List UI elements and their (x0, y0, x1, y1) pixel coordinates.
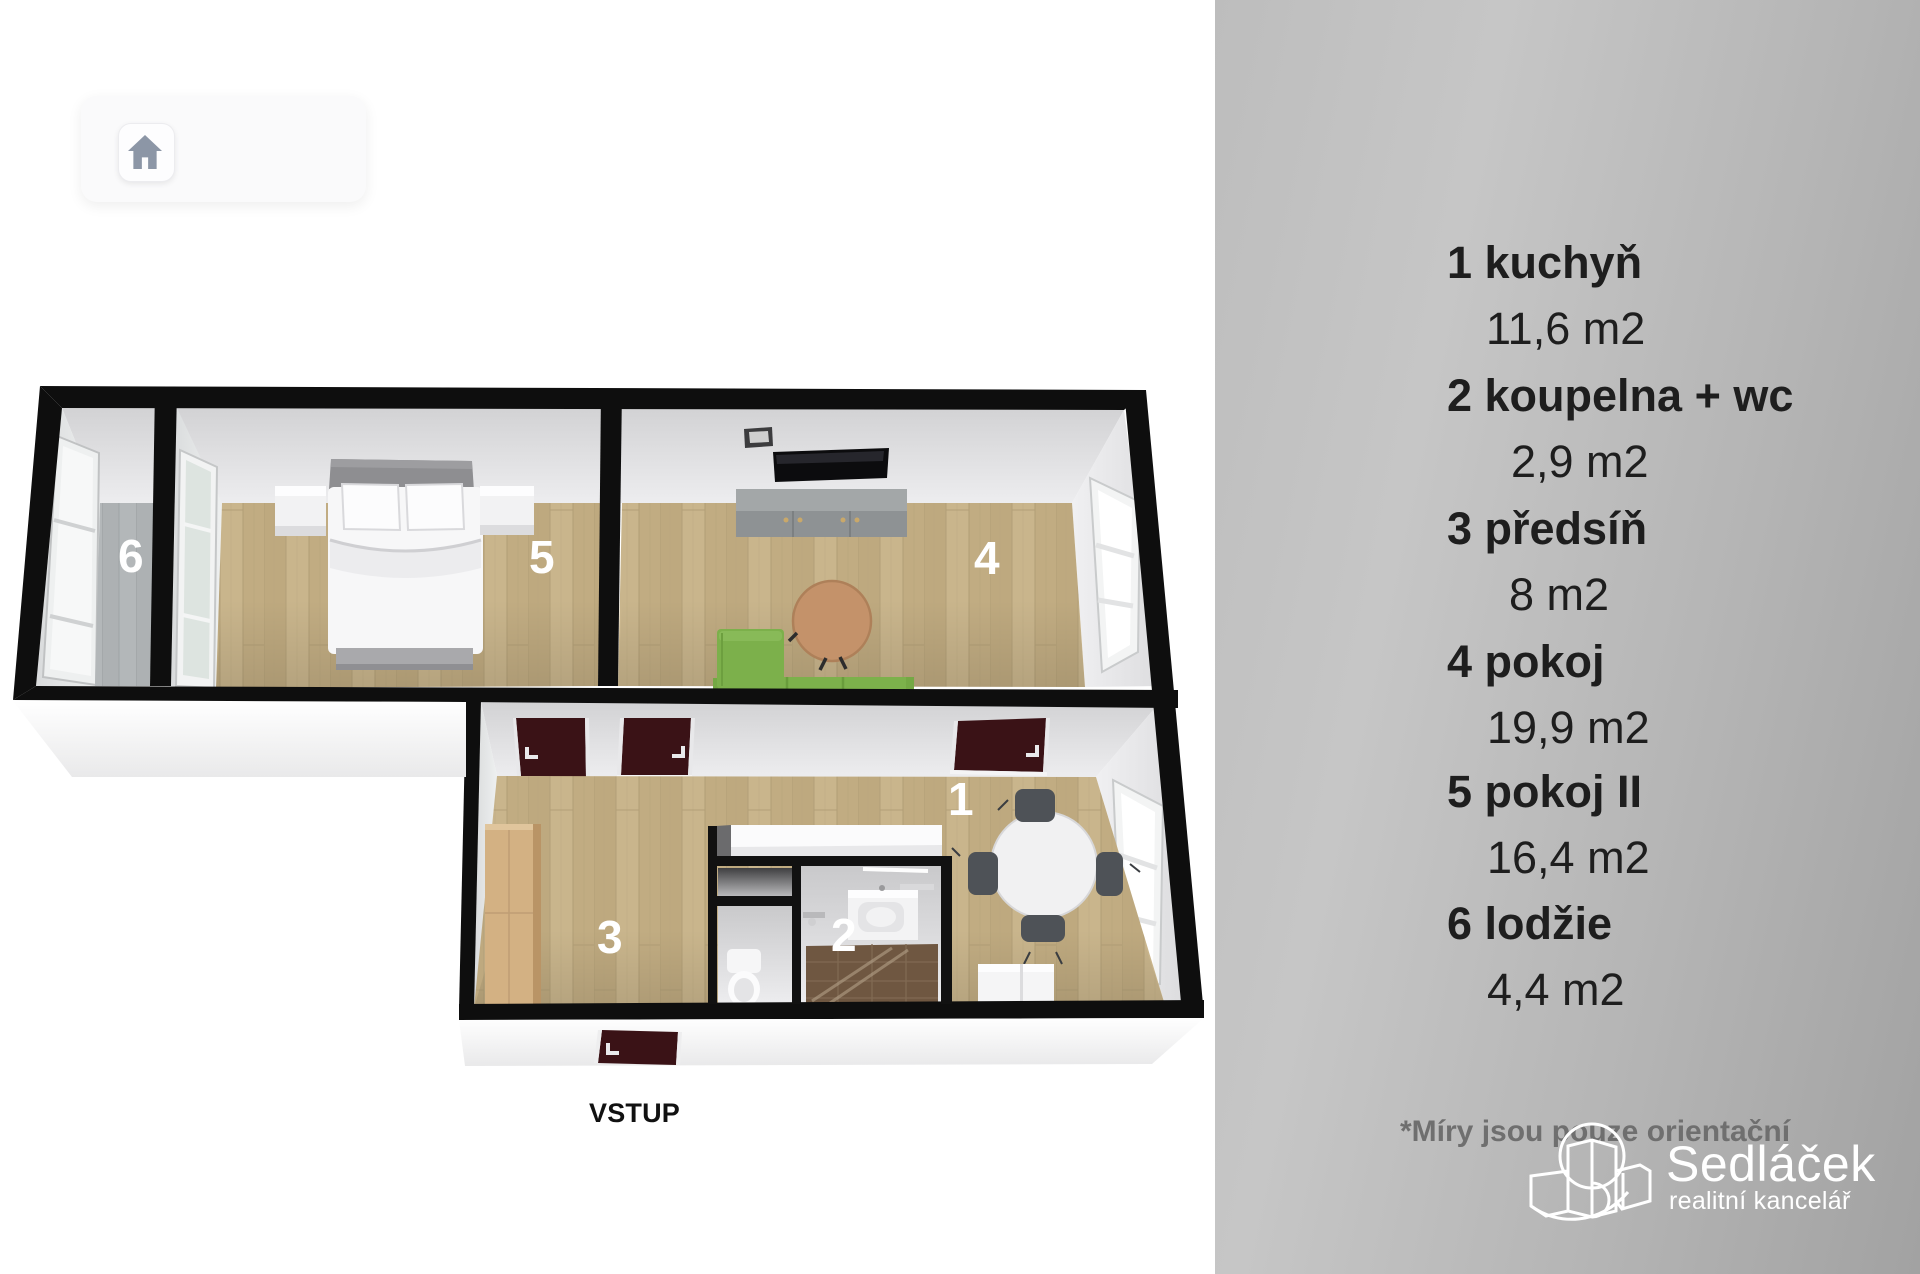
svg-text:2: 2 (831, 909, 857, 961)
svg-text:3: 3 (597, 911, 623, 963)
svg-text:1: 1 (948, 773, 974, 825)
svg-text:5: 5 (529, 531, 555, 583)
svg-text:Sedláček: Sedláček (1666, 1136, 1876, 1192)
svg-text:realitní kancelář: realitní kancelář (1669, 1187, 1851, 1215)
svg-text:4: 4 (974, 532, 1000, 584)
svg-text:6: 6 (118, 530, 144, 582)
